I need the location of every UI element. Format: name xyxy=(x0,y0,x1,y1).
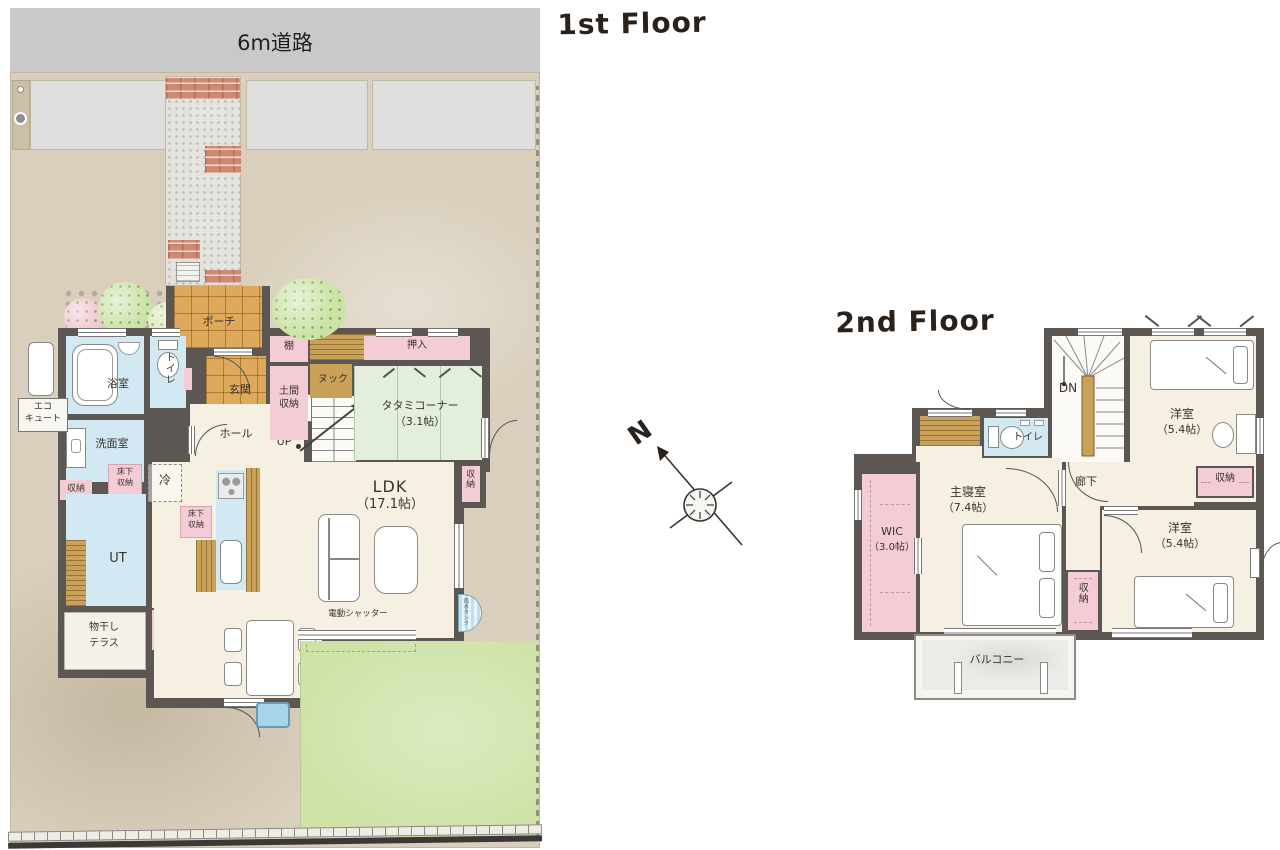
hall-label: ホール xyxy=(220,428,253,440)
tatami-door xyxy=(481,418,489,458)
parking-pad xyxy=(246,80,368,150)
nook-label: ヌック xyxy=(318,374,348,385)
step-stone xyxy=(176,262,200,282)
manhole-icon xyxy=(14,112,27,125)
ldk-label: LDK xyxy=(373,478,408,496)
bed-icon xyxy=(1150,340,1254,390)
coffee-table-icon xyxy=(374,526,418,594)
shutter-label: 電動シャッター xyxy=(328,610,388,620)
entrance-door xyxy=(214,348,252,356)
chair-icon xyxy=(224,662,242,686)
wic-door xyxy=(914,538,922,574)
tatami-corner xyxy=(354,366,482,460)
ut-label: UT xyxy=(109,552,126,567)
dn-label: DN xyxy=(1059,382,1077,395)
casement-arc xyxy=(938,390,970,410)
genkan-label: 玄関 xyxy=(229,384,251,396)
window xyxy=(996,409,1026,417)
chair-icon xyxy=(1212,422,1234,448)
casement-mark xyxy=(392,368,416,379)
ldk-size: （17.1帖） xyxy=(356,498,424,513)
balcony-pillar xyxy=(954,662,962,694)
desk-icon xyxy=(1236,414,1256,454)
outdoor-sink-icon xyxy=(256,702,290,728)
bedroom1-size: （5.4帖） xyxy=(1157,424,1208,436)
window xyxy=(1078,328,1122,336)
wic-label: WIC xyxy=(881,526,903,538)
floorplan-page: 1st Floor 2nd Floor 6m道路 ポーチ 玄関 浴室 ト xyxy=(0,0,1280,850)
toilet-icon xyxy=(158,340,178,350)
brick-accent xyxy=(205,270,241,284)
ecocute-tank-icon xyxy=(28,342,54,396)
desk-counter-2f xyxy=(920,416,980,446)
bedroom2-door xyxy=(1104,506,1138,515)
wic-size: （3.0帖） xyxy=(869,542,915,553)
balcony-label: バルコニー xyxy=(970,654,1025,666)
stairs-up xyxy=(312,396,356,462)
stairs-dn xyxy=(1052,336,1124,462)
floor-storage-l1: 床下 xyxy=(117,468,133,477)
storage-label: 収納 xyxy=(67,484,85,494)
ecocute-label-2: キュート xyxy=(25,414,61,424)
dining-table-icon xyxy=(246,620,294,696)
master-door xyxy=(1058,470,1066,506)
ldk-window-east xyxy=(454,524,464,588)
window xyxy=(1256,418,1264,454)
toilet-label-2f: トイレ xyxy=(1013,432,1043,443)
balcony-pillar xyxy=(1040,662,1048,694)
window xyxy=(428,328,458,337)
rain-tank-label: 雨水タンク xyxy=(462,598,468,626)
window xyxy=(376,328,412,337)
bedroom2-size: （5.4帖） xyxy=(1155,538,1206,550)
north-compass: N xyxy=(612,412,752,547)
brick-accent xyxy=(166,78,240,100)
tree-green-large xyxy=(272,278,346,340)
window xyxy=(1112,628,1192,638)
window xyxy=(1204,328,1246,336)
toilet-label-1f: トイレ xyxy=(163,352,174,385)
bedroom1-label: 洋室 xyxy=(1170,408,1194,421)
fence-east xyxy=(536,86,539,838)
doma-label-1: 土間 xyxy=(279,386,299,397)
corridor-south xyxy=(1066,506,1100,570)
terrace-label-1: 物干し xyxy=(89,622,119,633)
chair-icon xyxy=(224,628,242,652)
doma-label-2: 収納 xyxy=(279,399,299,410)
floor2-title: 2nd Floor xyxy=(835,305,995,339)
floor-storage-l1: 床下 xyxy=(188,510,204,519)
porch-label: ポーチ xyxy=(203,316,236,328)
window-box xyxy=(1250,548,1260,578)
casement-mark xyxy=(1208,314,1242,327)
storage-label: 収納 xyxy=(464,469,474,489)
bath-window xyxy=(78,328,126,337)
toilet-window xyxy=(152,328,180,337)
lawn xyxy=(300,641,539,839)
window xyxy=(854,490,862,520)
casement-mark xyxy=(448,368,472,379)
fridge-label: 冷 xyxy=(159,474,171,487)
road-label: 6m道路 xyxy=(237,32,313,56)
terrace-label-2: テラス xyxy=(89,638,119,649)
kitchen-panel xyxy=(196,540,216,592)
kitchen-sink-icon xyxy=(220,540,242,584)
tatami-label: タタミコーナー xyxy=(382,400,459,412)
wash-door xyxy=(188,426,195,454)
ut-wood-deck xyxy=(66,540,86,606)
bath-label: 浴室 xyxy=(107,378,129,390)
parking-pad xyxy=(372,80,536,150)
master-bedroom-ext xyxy=(916,446,982,462)
lawn-edge-dashed xyxy=(306,644,416,652)
toilet-tank-icon xyxy=(988,426,999,448)
floor-storage-l2: 収納 xyxy=(188,521,204,530)
up-dot xyxy=(296,444,301,449)
window xyxy=(928,409,972,417)
shelf-label: 棚 xyxy=(284,341,294,352)
closet-label: 収納 xyxy=(1215,473,1235,484)
shelf-icon xyxy=(1034,420,1044,426)
floor-storage-l2: 収納 xyxy=(117,479,133,488)
ecocute-label-1: エコ xyxy=(34,402,52,412)
master-label: 主寝室 xyxy=(950,486,986,499)
single-bed-icon xyxy=(1134,576,1234,628)
kitchen-panel xyxy=(246,468,260,592)
double-bed-icon xyxy=(962,524,1062,626)
ldk-window-south xyxy=(298,630,416,640)
wall xyxy=(262,286,270,354)
brick-accent xyxy=(205,146,241,174)
shelf-icon xyxy=(1020,420,1030,426)
bathtub-icon xyxy=(72,344,118,406)
vanity-icon xyxy=(66,428,86,468)
washroom-label: 洗面室 xyxy=(96,438,129,450)
casement-mark xyxy=(1156,314,1190,327)
tatami-size: （3.1帖） xyxy=(395,416,446,428)
brick-accent xyxy=(168,240,200,260)
north-label: N xyxy=(623,415,658,452)
master-size: （7.4帖） xyxy=(943,502,994,514)
floor1-title: 1st Floor xyxy=(557,7,707,41)
parking-pad xyxy=(30,80,168,150)
oshiire-label: 押入 xyxy=(407,340,427,351)
closet-label: 収納 xyxy=(1076,582,1087,604)
window xyxy=(1152,328,1194,336)
sofa-icon xyxy=(318,514,360,602)
bedroom2-label: 洋室 xyxy=(1168,522,1192,535)
stove-icon xyxy=(218,473,244,499)
toilet-door xyxy=(184,368,192,390)
meter-icon xyxy=(17,86,24,93)
